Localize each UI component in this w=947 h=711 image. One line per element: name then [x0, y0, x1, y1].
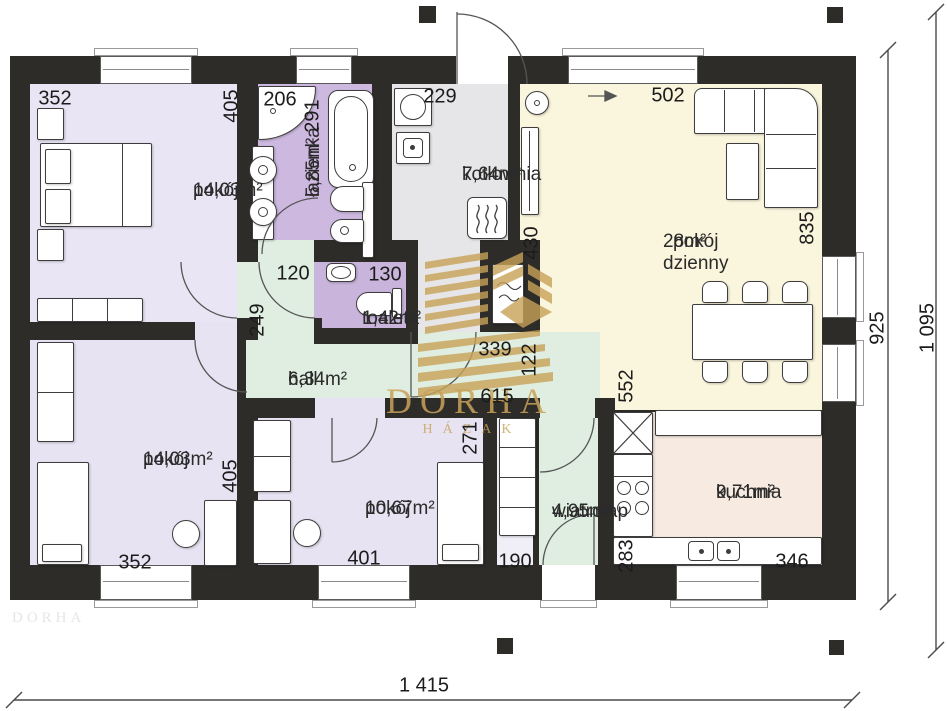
counter-line [614, 476, 652, 477]
window [822, 344, 856, 402]
dining-table [692, 304, 813, 360]
room-area: 1,42m² [362, 308, 421, 330]
dimension-label: 401 [347, 548, 380, 571]
fireplace [492, 264, 524, 324]
wardrobe-line [254, 456, 290, 457]
room-area: 9,71m² [716, 482, 775, 504]
window [676, 565, 762, 600]
boiler [467, 197, 507, 239]
dimension-label: 291 [302, 99, 325, 132]
wardrobe-line [500, 507, 535, 508]
dimension-label: 120 [276, 263, 309, 286]
window [296, 56, 352, 84]
column [827, 7, 843, 23]
overall-dimension-label: 925 [867, 311, 890, 344]
door-opening [258, 240, 318, 258]
room-area: 10,67m² [365, 498, 435, 520]
stove-burner [617, 481, 631, 495]
chair [742, 361, 768, 383]
coffee-table [726, 143, 759, 200]
room-area: 4,95m² [552, 501, 611, 523]
window-sill [562, 48, 704, 56]
chair [293, 519, 321, 547]
dimension-label: 615 [480, 386, 513, 409]
floor-plan: DORHA HÁZAK DORHA pokój14,03m²łazienka5,… [0, 0, 947, 711]
dimension-label: 130 [368, 264, 401, 287]
sink-drain [726, 549, 731, 554]
room-area: 6,34m² [288, 369, 347, 391]
column [829, 640, 844, 655]
bathtub-drain [349, 164, 356, 171]
window [100, 56, 192, 84]
door-threshold [540, 600, 597, 608]
dimension-label: 352 [38, 88, 71, 111]
window-sill [312, 600, 416, 608]
kitchen-peninsula [655, 410, 822, 436]
sofa-cushion-line [754, 90, 755, 132]
wall [314, 318, 322, 344]
dimension-label: 122 [519, 343, 542, 376]
ceiling-lamp-center [534, 100, 540, 106]
entrance-door-opening [456, 56, 508, 84]
window-sill [94, 48, 198, 56]
desk [204, 500, 237, 566]
pillow [42, 544, 82, 562]
wall [595, 398, 615, 418]
dimension-label: 249 [247, 303, 270, 336]
floor-kotlownia-korytarz [418, 240, 480, 332]
stove-burner [635, 481, 649, 495]
column [497, 638, 513, 654]
pillow [442, 544, 479, 561]
toilet [330, 186, 364, 212]
pillow [45, 149, 71, 184]
watermark-faint: DORHA [12, 610, 85, 627]
dimension-label: 339 [478, 339, 511, 362]
washing-machine-drum [400, 94, 426, 120]
dimension-label: 405 [221, 89, 244, 122]
floor-wiatrolap [539, 412, 598, 565]
window-sill [856, 340, 864, 406]
chair [702, 361, 728, 383]
washbasin-drain [258, 165, 268, 175]
dimension-label: 190 [498, 551, 531, 574]
wall [508, 84, 520, 240]
wall [372, 84, 392, 240]
kitchen-counter [613, 454, 653, 537]
room-area: 14,03m² [143, 449, 213, 471]
wiatrolap-door-opening [542, 565, 595, 600]
sofa-cushion-line [724, 90, 725, 132]
appliance-dot [410, 145, 415, 150]
chair [782, 361, 808, 383]
room-area: 5,85m² [303, 138, 325, 197]
watermark-title: DORHA [386, 380, 554, 422]
dimension-label: 405 [220, 459, 243, 492]
wall [322, 328, 406, 344]
window-sill [290, 48, 358, 56]
window [568, 56, 698, 84]
bidet-drain [340, 226, 349, 235]
room-area: 7,64m² [462, 164, 521, 186]
window-sill [94, 600, 198, 608]
wardrobe-line [500, 477, 535, 478]
sofa-cushion-line [766, 168, 816, 169]
fridge [613, 412, 653, 454]
room-area: 14,03m² [193, 180, 263, 202]
dresser-line [72, 299, 73, 321]
dimension-label: 430 [521, 226, 544, 259]
dimension-label: 283 [616, 539, 639, 572]
sofa-corner [764, 88, 818, 208]
chair [782, 281, 808, 303]
pillow [45, 189, 71, 224]
desk [253, 500, 291, 564]
dimension-label: 206 [263, 89, 296, 112]
dimension-label: 271 [460, 421, 483, 454]
overall-dimension-label: 1 415 [399, 675, 449, 698]
dimension-label: 346 [775, 551, 808, 574]
wall [30, 322, 195, 340]
sink-drain [699, 549, 704, 554]
wardrobe-line [38, 392, 73, 393]
door-opening [315, 398, 385, 418]
dresser-line [107, 299, 108, 321]
room-area: 28m² [663, 231, 706, 253]
wall [237, 340, 246, 398]
door-opening [314, 262, 322, 318]
chair [172, 520, 200, 548]
washbasin-drain [258, 207, 268, 217]
window [822, 256, 856, 318]
stove-burner [635, 501, 649, 515]
dimension-label: 352 [118, 552, 151, 575]
chair [702, 281, 728, 303]
wardrobe-line [500, 447, 535, 448]
dresser [37, 298, 143, 322]
dimension-label: 835 [797, 211, 820, 244]
bed-line [122, 144, 123, 226]
overall-dimension-label: 1 095 [917, 303, 940, 353]
chair [742, 281, 768, 303]
nightstand [37, 229, 64, 261]
sofa-cushion-line [766, 134, 816, 135]
nightstand [37, 108, 64, 140]
column [419, 6, 436, 23]
small-washbasin-bowl [331, 266, 351, 279]
window-sill [670, 600, 768, 608]
window-sill [856, 252, 864, 322]
dimension-label: 229 [423, 86, 456, 109]
dimension-label: 502 [651, 85, 684, 108]
dimension-label: 552 [616, 369, 639, 402]
